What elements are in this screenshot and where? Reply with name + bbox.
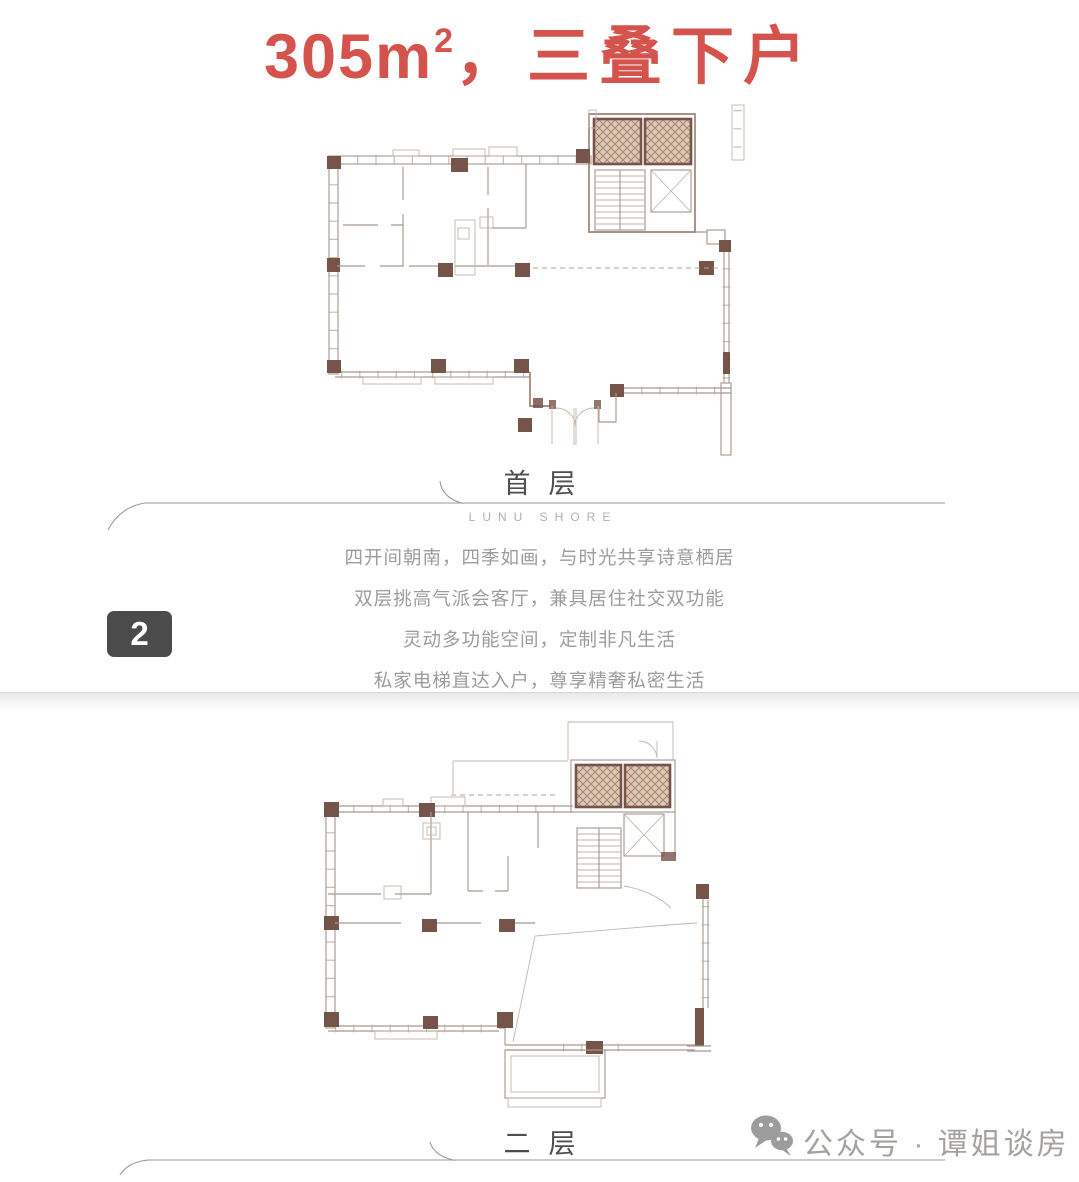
- page-title: 305m2，三叠下户: [0, 6, 1079, 97]
- wechat-icon: [750, 1112, 796, 1160]
- page-divider: [0, 692, 1079, 713]
- first-floor-plan: [283, 100, 795, 468]
- title-suffix: ，三叠下户: [455, 22, 815, 92]
- wechat-account-text: 公众号 · 谭姐谈房: [803, 1128, 1070, 1161]
- page: 305m2，三叠下户: [0, 0, 1079, 1182]
- page-number-badge: 2: [107, 611, 172, 657]
- brand-text-value: LUNU SHORE: [469, 510, 618, 524]
- second-floor-plan: [283, 716, 795, 1118]
- page-number-value: 2: [130, 615, 148, 653]
- wechat-account-label: 公众号 · 谭姐谈房: [803, 1119, 1070, 1163]
- description-line: 四开间朝南，四季如画，与时光共享诗意栖居: [0, 537, 1079, 578]
- brand-text: LUNU SHORE: [0, 510, 1079, 524]
- title-superscript: 2: [434, 22, 455, 60]
- title-area-value: 305m: [264, 22, 433, 92]
